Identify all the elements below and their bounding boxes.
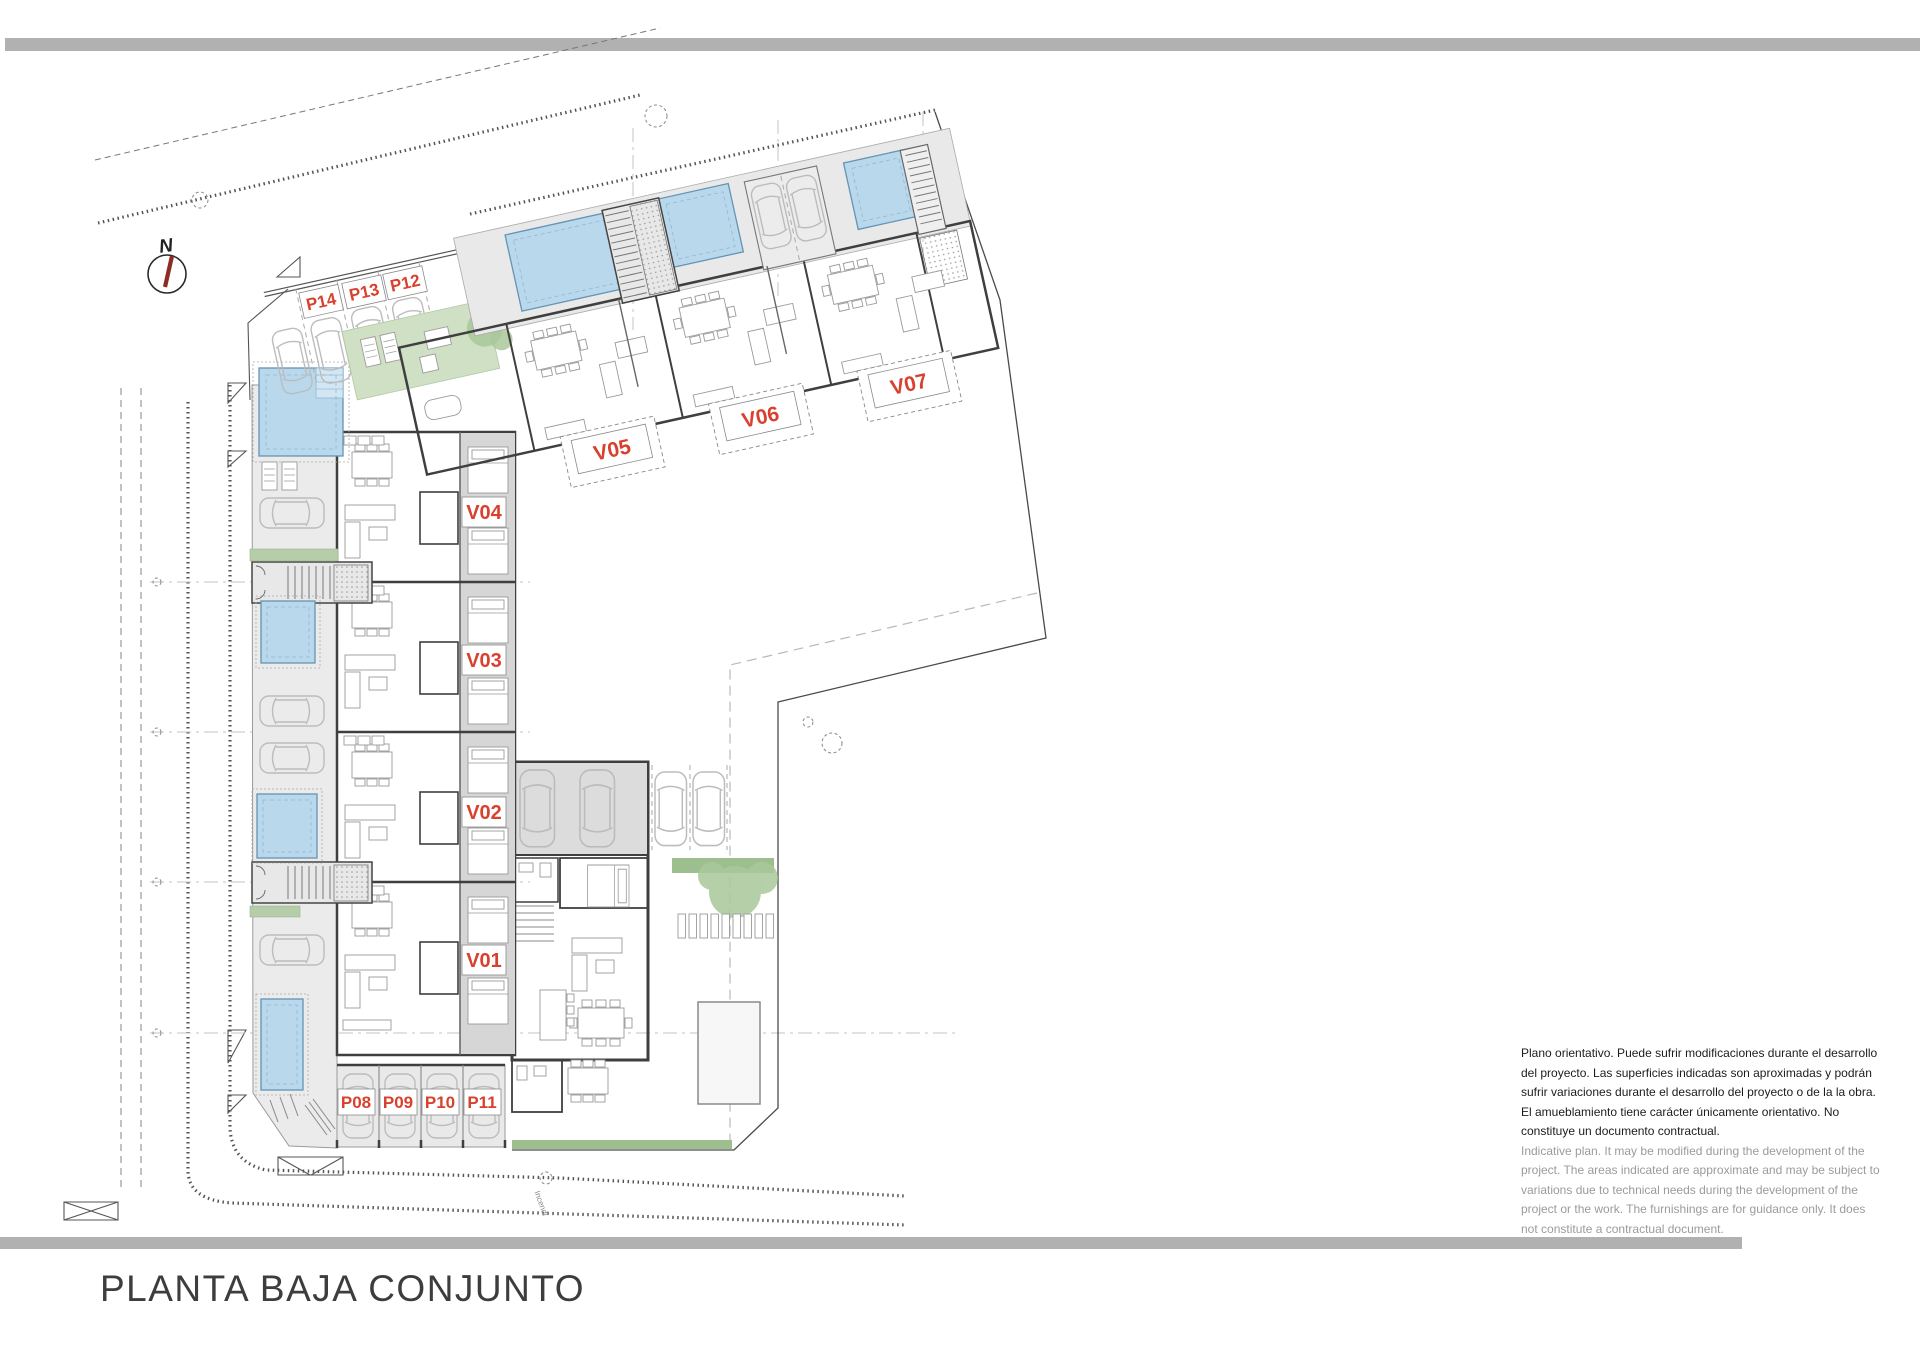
- pool-v02: [252, 789, 322, 863]
- bottom-gray-bar: [0, 1237, 1742, 1249]
- villa-pool-outline: [698, 1002, 760, 1104]
- tree: [698, 862, 778, 918]
- disclaimer-en-line: project or the work. The furnishings are…: [1521, 1200, 1880, 1220]
- garden-strip: [512, 1140, 732, 1149]
- site-note-text: Incendi: [532, 1190, 549, 1218]
- disclaimer-es-line: El amueblamiento tiene carácter únicamen…: [1521, 1103, 1880, 1123]
- top-gray-bar: [5, 38, 1920, 51]
- parking-row-bottom: P08 P09 P10 P11: [337, 1065, 505, 1148]
- compass-needle: [165, 256, 172, 287]
- parking-label-p08: P08: [341, 1093, 371, 1112]
- stairwell-lower: [252, 862, 372, 903]
- pool-v03: [256, 596, 320, 668]
- pool-v04: [253, 362, 349, 462]
- planter-strip: [250, 549, 338, 561]
- disclaimer-es-line: del proyecto. Las superficies indicadas …: [1521, 1064, 1880, 1084]
- disclaimer-en-line: Indicative plan. It may be modified duri…: [1521, 1142, 1880, 1162]
- disclaimer-en-line: variations due to technical needs during…: [1521, 1181, 1880, 1201]
- unit-label-v02: V02: [466, 802, 502, 824]
- disclaimer-es-line: Plano orientativo. Puede sufrir modifica…: [1521, 1044, 1880, 1064]
- pool-v01: [256, 994, 308, 1095]
- page-title: PLANTA BAJA CONJUNTO: [100, 1268, 585, 1310]
- compass-north-label: N: [158, 235, 176, 258]
- disclaimer-es-line: sufrir variaciones durante el desarrollo…: [1521, 1083, 1880, 1103]
- floorplan-sheet: { "sheet": { "title": "PLANTA BAJA CONJU…: [0, 0, 1920, 1354]
- disclaimer-en-line: not constitute a contractual document.: [1521, 1220, 1880, 1240]
- disclaimer-es-line: constituye un documento contractual.: [1521, 1122, 1880, 1142]
- parking-label-p11: P11: [467, 1093, 496, 1112]
- parking-label-p09: P09: [383, 1093, 413, 1112]
- unit-label-v01: V01: [466, 950, 502, 972]
- pergola-slats: [678, 914, 774, 938]
- planter-strip: [250, 906, 300, 917]
- disclaimer-en-line: project. The areas indicated are approxi…: [1521, 1161, 1880, 1181]
- disclaimer-block: Plano orientativo. Puede sufrir modifica…: [1521, 1044, 1880, 1239]
- stairwell-upper: [252, 562, 372, 603]
- parking-label-p10: P10: [425, 1093, 455, 1112]
- unit-label-v04: V04: [466, 502, 502, 524]
- north-compass: N: [148, 235, 186, 293]
- left-wing: [250, 362, 515, 1148]
- unit-label-v03: V03: [466, 650, 502, 672]
